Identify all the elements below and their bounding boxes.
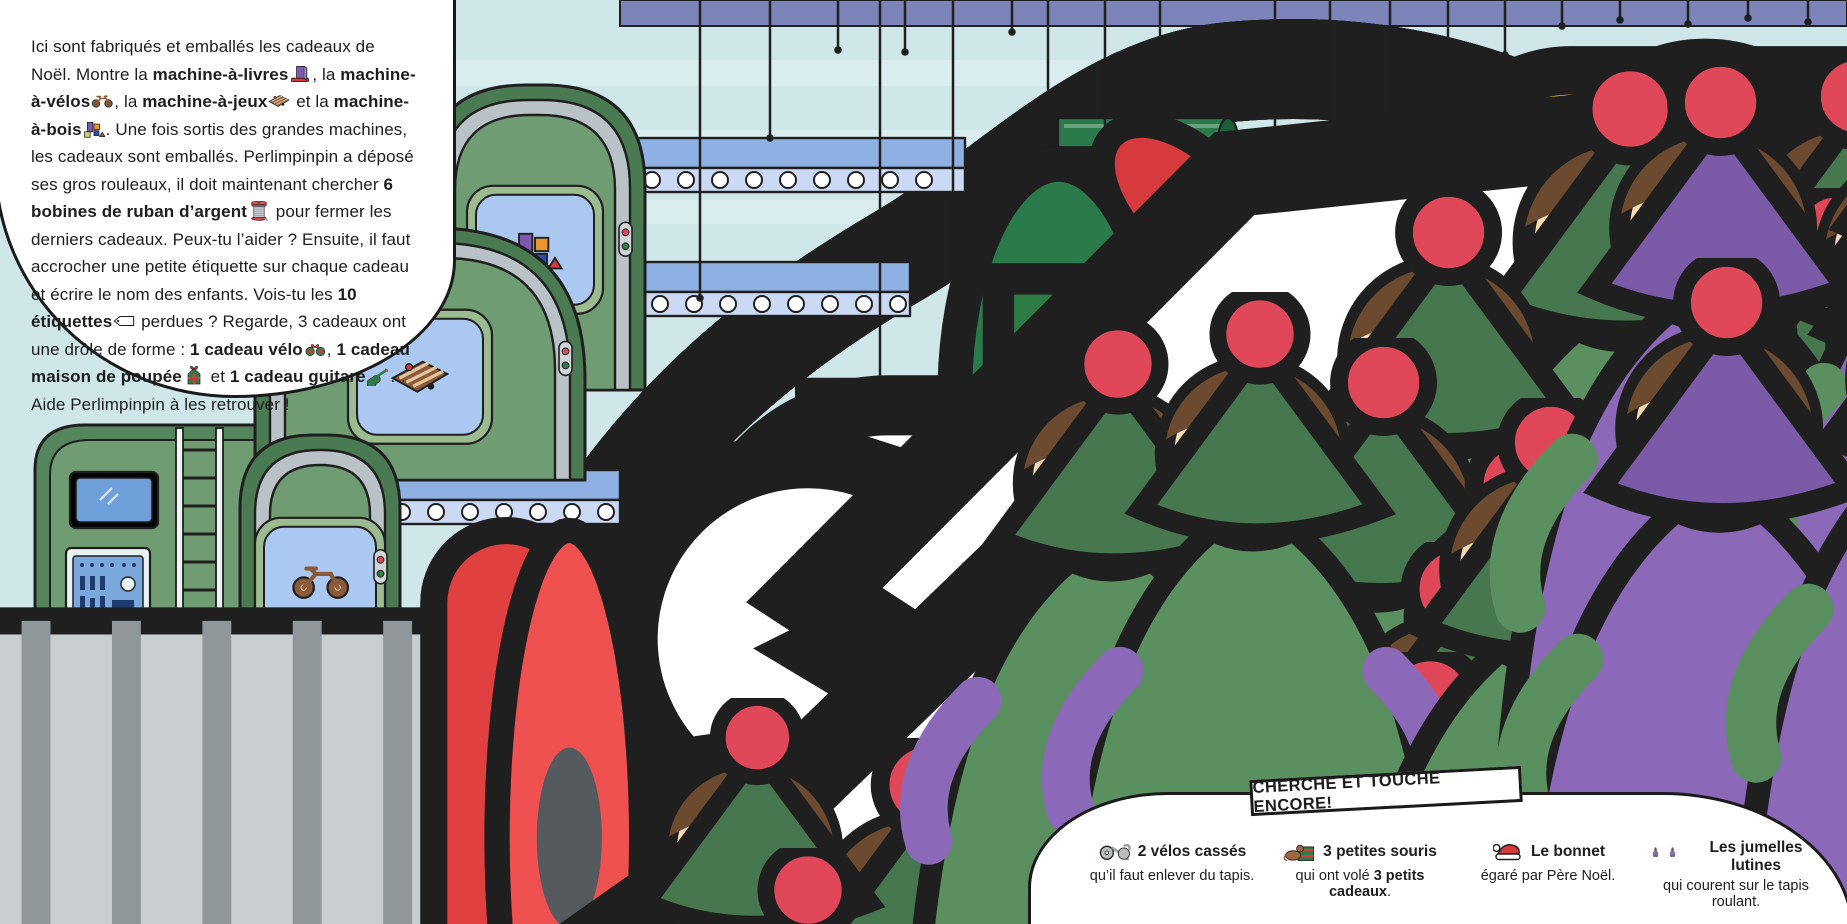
- wood-machine-icon: [83, 119, 105, 139]
- gift-bike-icon: [304, 339, 326, 359]
- checklist-item-bold: Le bonnet: [1531, 843, 1605, 861]
- book-machine-icon: [289, 64, 311, 84]
- checklist-items: 2 vélos cassésqu’il faut enlever du tapi…: [1083, 839, 1825, 910]
- games-machine-icon: [268, 91, 290, 111]
- intro-plain-text: et: [206, 367, 230, 386]
- checklist-item-4[interactable]: Les jumelles lutinesqui courent sur le t…: [1647, 839, 1825, 910]
- bike-machine-icon: [91, 91, 113, 111]
- elf-twins-icon: [1647, 844, 1681, 870]
- checklist-item-1[interactable]: 2 vélos cassésqu’il faut enlever du tapi…: [1083, 839, 1261, 910]
- gift-guitar-icon: [367, 366, 389, 386]
- checklist-item-bold: Les jumelles lutines: [1687, 839, 1825, 875]
- intro-bold-text: machine-à-jeux: [142, 92, 267, 111]
- checklist-item-caption: qui courent sur le tapis roulant.: [1647, 878, 1825, 910]
- gift-house-icon: [183, 366, 205, 386]
- intro-plain-text: , la: [312, 65, 340, 84]
- checklist-item-caption: qui ont volé 3 petits cadeaux.: [1271, 868, 1449, 900]
- checklist-item-bold: 3 petites souris: [1323, 843, 1437, 861]
- intro-text: Ici sont fabriqués et emballés les cadea…: [31, 33, 419, 418]
- intro-bold-text: 1 cadeau guitare: [230, 367, 366, 386]
- checklist-item-2[interactable]: 3 petites sourisqui ont volé 3 petits ca…: [1271, 839, 1449, 910]
- checklist-bubble: 2 vélos cassésqu’il faut enlever du tapi…: [1028, 792, 1847, 924]
- checklist-item-bold: 2 vélos cassés: [1138, 843, 1247, 861]
- tag-icon: [113, 311, 135, 331]
- workshop-scene: EN…: [0, 0, 1847, 924]
- intro-plain-text: et la: [291, 92, 333, 111]
- intro-bubble: Ici sont fabriqués et emballés les cadea…: [0, 0, 456, 398]
- checklist-item-caption: égaré par Père Noël.: [1459, 868, 1637, 884]
- mouse-gift-icon: [1283, 839, 1317, 865]
- conveyor-belt[interactable]: [635, 138, 965, 192]
- intro-bold-text: machine-à-livres: [153, 65, 289, 84]
- checklist-item-3[interactable]: Le bonnetégaré par Père Noël.: [1459, 839, 1637, 910]
- intro-plain-text: ,: [327, 340, 337, 359]
- checklist-item-caption: qu’il faut enlever du tapis.: [1083, 868, 1261, 884]
- ribbon-spool-icon: [248, 201, 270, 221]
- intro-bold-text: 1 cadeau vélo: [190, 340, 303, 359]
- broken-bike-icon: [1098, 839, 1132, 865]
- santa-hat-icon: [1491, 839, 1525, 865]
- intro-plain-text: , la: [114, 92, 142, 111]
